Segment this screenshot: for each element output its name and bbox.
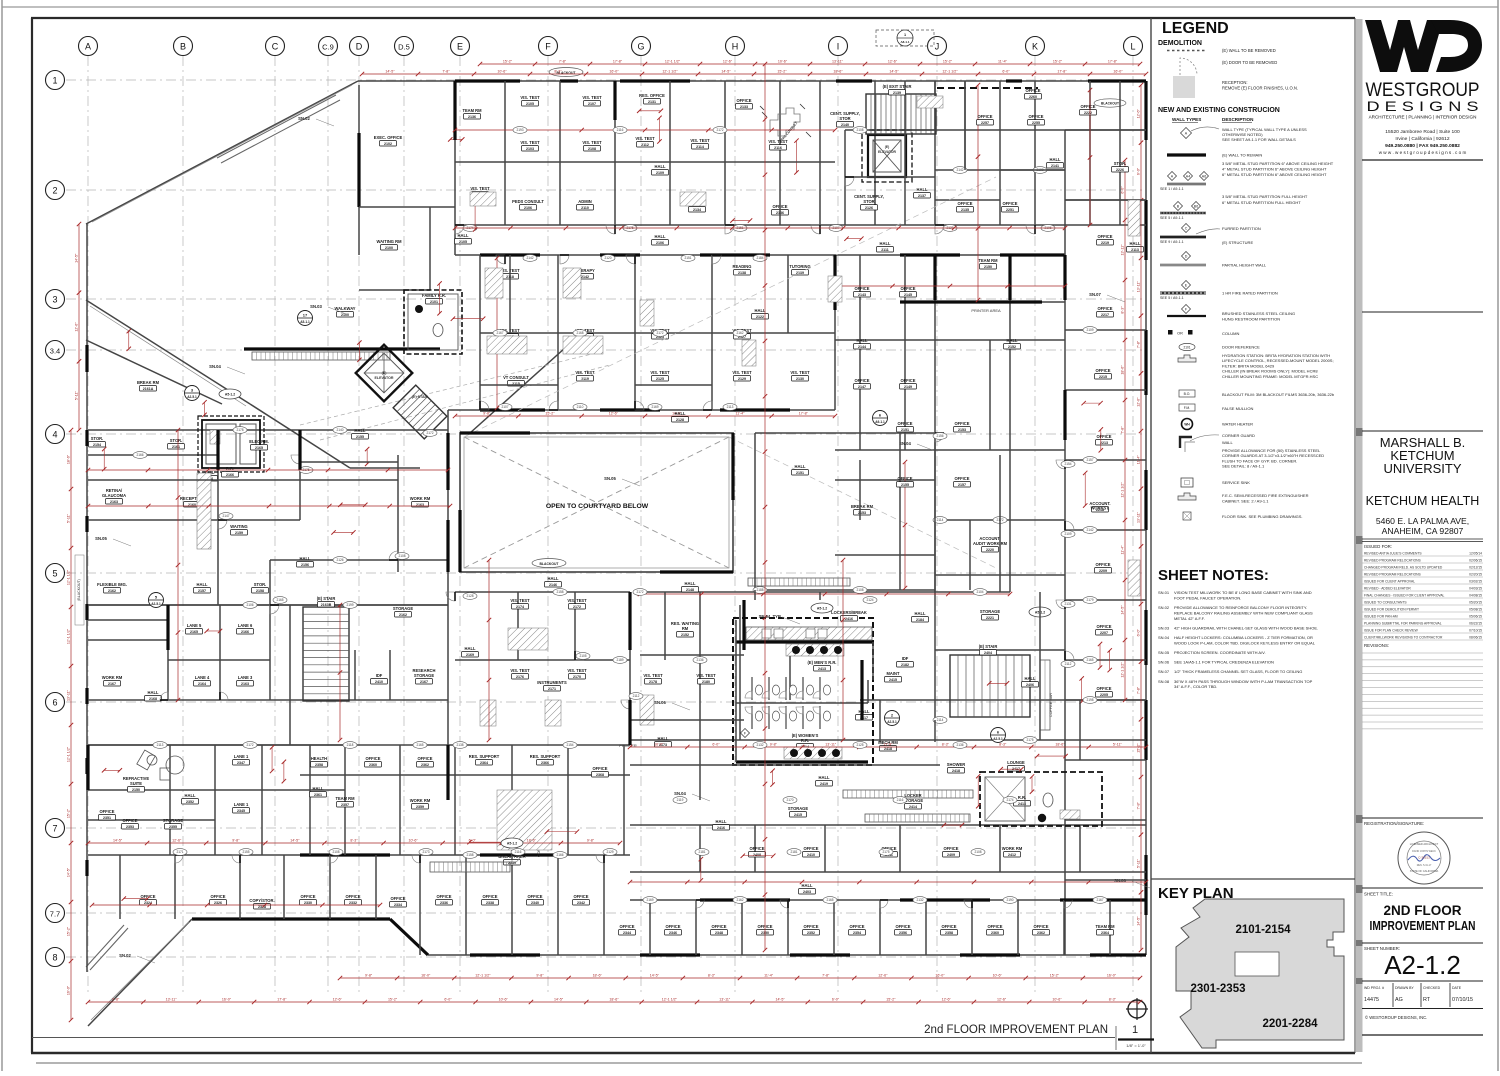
svg-text:ADMIN: ADMIN — [578, 199, 591, 204]
svg-text:C: C — [1185, 227, 1188, 231]
svg-text:R.R.: R.R. — [801, 738, 809, 743]
svg-text:OFFICE: OFFICE — [1096, 686, 1111, 691]
svg-text:DAVID JORYN WECK: DAVID JORYN WECK — [1412, 850, 1436, 853]
svg-text:2357: 2357 — [341, 803, 349, 807]
svg-text:2159: 2159 — [235, 531, 243, 535]
svg-text:SN.04: SN.04 — [674, 791, 686, 796]
svg-text:OFFICE: OFFICE — [736, 98, 751, 103]
svg-text:INSTRUMENTS: INSTRUMENTS — [537, 680, 567, 685]
svg-text:2100: 2100 — [385, 246, 393, 250]
svg-text:05/20/15: 05/20/15 — [1469, 601, 1482, 605]
svg-text:SN.02: SN.02 — [298, 116, 310, 121]
svg-text:HALL: HALL — [465, 646, 476, 651]
svg-text:OFFICE: OFFICE — [1097, 234, 1112, 239]
svg-text:04/08/15: 04/08/15 — [1469, 594, 1482, 598]
svg-text:2162: 2162 — [736, 331, 743, 335]
svg-text:2257: 2257 — [981, 121, 989, 125]
svg-text:WORK RM: WORK RM — [410, 798, 431, 803]
svg-text:ELEC RM.: ELEC RM. — [249, 439, 269, 444]
svg-text:B.O.: B.O. — [1184, 392, 1191, 396]
svg-text:WALL: WALL — [1222, 440, 1234, 445]
svg-text:ANAHEIM, CA 92807: ANAHEIM, CA 92807 — [1382, 526, 1464, 536]
svg-text:7'-8": 7'-8" — [1136, 802, 1140, 810]
svg-text:2332: 2332 — [349, 901, 357, 905]
svg-text:2107: 2107 — [501, 405, 508, 409]
svg-text:2142: 2142 — [526, 256, 533, 260]
svg-text:WORK RM: WORK RM — [1002, 846, 1023, 851]
svg-text:(E) DOOR TO BE REMOVED: (E) DOOR TO BE REMOVED — [1222, 60, 1277, 65]
svg-text:HALL: HALL — [185, 793, 196, 798]
svg-text:2222: 2222 — [1084, 111, 1092, 115]
svg-text:ISSUED FOR DEMOLITION PERMIT: ISSUED FOR DEMOLITION PERMIT — [1364, 608, 1419, 612]
svg-text:2155: 2155 — [242, 850, 249, 854]
svg-text:2355: 2355 — [169, 825, 177, 829]
svg-text:12'-1 1/2": 12'-1 1/2" — [66, 569, 70, 585]
svg-text:E: E — [457, 42, 463, 52]
svg-text:2173: 2173 — [422, 850, 429, 854]
svg-text:2126: 2126 — [865, 206, 873, 210]
svg-text:VIS. TEST: VIS. TEST — [567, 668, 587, 673]
svg-text:VIS. TEST: VIS. TEST — [582, 140, 602, 145]
svg-text:G: G — [637, 42, 644, 52]
svg-text:SN.05: SN.05 — [95, 536, 107, 541]
svg-text:10'-6": 10'-6" — [497, 69, 507, 73]
svg-text:2170: 2170 — [786, 798, 793, 802]
svg-text:2172: 2172 — [246, 743, 253, 747]
svg-text:2174: 2174 — [516, 605, 524, 609]
svg-text:12'-1 1/2": 12'-1 1/2" — [1120, 662, 1124, 678]
svg-text:2142: 2142 — [956, 168, 963, 172]
svg-text:OFFICE: OFFICE — [954, 476, 969, 481]
svg-text:12'-1 1/2": 12'-1 1/2" — [662, 69, 678, 73]
svg-text:12'-6": 12'-6" — [172, 838, 182, 842]
svg-text:12'-6": 12'-6" — [609, 411, 619, 415]
svg-text:18'-6": 18'-6" — [527, 838, 537, 842]
svg-text:REPLACE BALCONY RAILING ASSEMB: REPLACE BALCONY RAILING ASSEMBLY WITH NE… — [1174, 610, 1313, 615]
svg-text:2162: 2162 — [108, 589, 116, 593]
svg-text:DESCRIPTION: DESCRIPTION — [1222, 117, 1254, 122]
svg-text:F.E.C. SEMI-RECESSED FIRE EXTI: F.E.C. SEMI-RECESSED FIRE EXTINGUISHER — [1222, 493, 1309, 498]
svg-text:VIS. TEST: VIS. TEST — [635, 136, 655, 141]
svg-text:WALL TYPES: WALL TYPES — [1172, 117, 1201, 122]
svg-text:FLEXIBLE IMG.: FLEXIBLE IMG. — [97, 582, 127, 587]
svg-text:CHILLER MOUNTING FRAME: MODEL: CHILLER MOUNTING FRAME: MODEL MTGFR.HSC — [1222, 374, 1318, 379]
svg-text:STORAGE: STORAGE — [980, 609, 1000, 614]
svg-text:8'-3": 8'-3" — [554, 69, 562, 73]
svg-text:2nd FLOOR IMPROVEMENT PLAN: 2nd FLOOR IMPROVEMENT PLAN — [924, 1024, 1108, 1036]
svg-text:2219: 2219 — [1101, 241, 1109, 245]
svg-text:6'-0": 6'-0" — [712, 742, 720, 746]
svg-text:CORNER GUARD: CORNER GUARD — [1222, 433, 1255, 438]
svg-text:2352: 2352 — [186, 800, 194, 804]
svg-text:VIS. TEST: VIS. TEST — [520, 140, 540, 145]
svg-text:WORK RM: WORK RM — [410, 496, 431, 501]
svg-text:HALL: HALL — [355, 428, 366, 433]
svg-text:5'-11": 5'-11" — [66, 513, 70, 523]
svg-text:(E) STAIR: (E) STAIR — [317, 596, 336, 601]
svg-text:HALL: HALL — [655, 164, 666, 169]
svg-text:SERVICE SINK: SERVICE SINK — [1222, 480, 1250, 485]
svg-text:2165: 2165 — [276, 598, 283, 602]
svg-text:12'-1 1/2": 12'-1 1/2" — [475, 973, 491, 977]
svg-text:HALL: HALL — [1025, 676, 1036, 681]
svg-text:(E) MEN’S R.R.: (E) MEN’S R.R. — [808, 660, 837, 665]
svg-text:17'-8": 17'-8" — [1108, 59, 1118, 63]
svg-text:949.250.0880 | FAX 949.250.0: 949.250.0880 | FAX 949.250.0882 — [1385, 143, 1460, 149]
svg-text:STOR.: STOR. — [170, 438, 182, 443]
svg-text:2167: 2167 — [108, 682, 116, 686]
svg-text:12'-6": 12'-6" — [74, 322, 78, 332]
svg-text:2102: 2102 — [384, 142, 392, 146]
svg-text:REMOVE (E) FLOOR FINISHES, U.O: REMOVE (E) FLOOR FINISHES, U.O.N. — [1222, 86, 1298, 91]
svg-text:DRAWN BY: DRAWN BY — [1395, 986, 1414, 990]
svg-text:D: D — [356, 42, 363, 52]
svg-text:PARTIAL HEIGHT WALL: PARTIAL HEIGHT WALL — [1222, 263, 1267, 268]
svg-text:PROJECTION SCREEN. COORDINATE: PROJECTION SCREEN. COORDINATE WITH A/V. — [1174, 650, 1266, 655]
svg-text:08/06/15: 08/06/15 — [1469, 636, 1482, 640]
svg-text:7: 7 — [52, 824, 57, 834]
svg-text:OFFICE: OFFICE — [1028, 114, 1043, 119]
svg-text:2346: 2346 — [669, 931, 677, 935]
svg-text:2125: 2125 — [656, 377, 664, 381]
svg-text:2110: 2110 — [581, 206, 589, 210]
svg-text:FAMILY R.R.: FAMILY R.R. — [422, 293, 446, 298]
svg-text:ISSUED FOR:: ISSUED FOR: — [1364, 544, 1392, 549]
svg-text:STOR: STOR — [863, 199, 874, 204]
svg-text:2175: 2175 — [882, 850, 889, 854]
svg-text:SN.04: SN.04 — [899, 441, 911, 446]
svg-text:6'-0": 6'-0" — [832, 997, 840, 1001]
svg-text:18'-6": 18'-6" — [66, 454, 70, 464]
svg-text:2166: 2166 — [226, 473, 234, 477]
svg-text:2412: 2412 — [1008, 853, 1016, 857]
svg-text:12'-1 1/2": 12'-1 1/2" — [662, 997, 678, 1001]
svg-text:2169: 2169 — [646, 898, 653, 902]
svg-text:GLAUCOMA: GLAUCOMA — [102, 493, 126, 498]
svg-text:SN.06: SN.06 — [654, 700, 666, 705]
svg-text:WAITING: WAITING — [230, 524, 248, 529]
svg-text:8'-3": 8'-3" — [1120, 306, 1124, 314]
svg-text:2336: 2336 — [440, 901, 448, 905]
svg-text:AG: AG — [1395, 997, 1403, 1003]
svg-text:NEW AND EXISTING CONSTRUCION: NEW AND EXISTING CONSTRUCION — [1158, 107, 1280, 114]
svg-text:SUITE: SUITE — [130, 781, 142, 786]
svg-text:1/2" THICK FRAMELESS CHANNEL S: 1/2" THICK FRAMELESS CHANNEL SET GLASS, … — [1174, 669, 1302, 674]
svg-text:HALL: HALL — [1130, 241, 1141, 246]
svg-text:2152: 2152 — [681, 633, 689, 637]
svg-text:13'-11": 13'-11" — [66, 689, 70, 701]
svg-text:2221: 2221 — [986, 616, 994, 620]
svg-text:8'-3": 8'-3" — [708, 973, 716, 977]
svg-text:RES. SUPPORT: RES. SUPPORT — [530, 754, 561, 759]
svg-text:2153: 2153 — [858, 511, 866, 515]
svg-text:SN.06: SN.06 — [1158, 660, 1170, 665]
svg-text:OFFICE: OFFICE — [210, 894, 225, 899]
svg-text:6: 6 — [52, 698, 57, 708]
svg-text:HALL: HALL — [300, 556, 311, 561]
svg-text:HALL: HALL — [915, 611, 926, 616]
svg-text:2413: 2413 — [818, 667, 826, 671]
svg-text:2137: 2137 — [918, 194, 926, 198]
svg-text:D: D — [1185, 255, 1188, 259]
svg-text:K: K — [1032, 42, 1038, 52]
svg-text:A6: A6 — [1202, 175, 1206, 179]
svg-text:2157: 2157 — [958, 483, 966, 487]
svg-text:02/06/15: 02/06/15 — [1469, 559, 1482, 563]
svg-text:2156: 2156 — [936, 434, 943, 438]
svg-text:LANE 4: LANE 4 — [195, 675, 210, 680]
svg-text:A9-1.1: A9-1.1 — [875, 420, 885, 424]
svg-text:2416: 2416 — [717, 826, 725, 830]
svg-text:2135: 2135 — [961, 208, 969, 212]
svg-text:2146: 2146 — [549, 583, 557, 587]
svg-text:2171: 2171 — [548, 687, 556, 691]
svg-text:F.M.: F.M. — [1184, 406, 1190, 410]
svg-text:16'-0": 16'-0" — [66, 985, 70, 995]
svg-text:11'-4": 11'-4" — [764, 973, 774, 977]
svg-text:7'-8": 7'-8" — [822, 973, 830, 977]
svg-text:2148: 2148 — [686, 588, 694, 592]
svg-text:2220: 2220 — [986, 548, 994, 552]
svg-text:VIS. TEST: VIS. TEST — [510, 668, 530, 673]
svg-text:15'-2": 15'-2" — [777, 69, 787, 73]
svg-text:STOR: STOR — [839, 116, 850, 121]
svg-text:2360: 2360 — [991, 931, 999, 935]
svg-text:2133: 2133 — [740, 105, 748, 109]
svg-text:OFFICE: OFFICE — [619, 924, 634, 929]
svg-text:2125: 2125 — [856, 743, 863, 747]
svg-text:HALL: HALL — [675, 411, 686, 416]
svg-text:2353: 2353 — [126, 825, 134, 829]
svg-text:2106: 2106 — [656, 241, 664, 245]
svg-text:HEALTH: HEALTH — [311, 756, 327, 761]
svg-text:2119: 2119 — [677, 798, 684, 802]
svg-text:2106: 2106 — [524, 206, 532, 210]
svg-text:SN.01: SN.01 — [1158, 590, 1170, 595]
svg-text:2144: 2144 — [858, 345, 866, 349]
svg-text:OFFICE: OFFICE — [527, 894, 542, 899]
svg-text:HALL: HALL — [1050, 157, 1061, 162]
svg-text:12'-1 1/2": 12'-1 1/2" — [66, 746, 70, 762]
svg-text:2109: 2109 — [656, 171, 664, 175]
svg-text:15'-2": 15'-2" — [503, 59, 513, 63]
svg-text:2161: 2161 — [172, 445, 180, 449]
svg-text:2163: 2163 — [110, 500, 118, 504]
svg-text:2ND FLOOR: 2ND FLOOR — [1383, 903, 1461, 918]
svg-text:F: F — [545, 42, 551, 52]
svg-text:B6: B6 — [1194, 205, 1198, 209]
svg-text:HALL: HALL — [880, 241, 891, 246]
svg-text:OFFICE: OFFICE — [900, 378, 915, 383]
svg-text:2147: 2147 — [858, 385, 866, 389]
svg-text:IDF: IDF — [376, 673, 383, 678]
svg-text:WATER HEATER: WATER HEATER — [1222, 422, 1253, 427]
svg-text:2348: 2348 — [715, 931, 723, 935]
svg-text:2167: 2167 — [496, 331, 503, 335]
svg-text:(E) STAIR: (E) STAIR — [979, 644, 998, 649]
svg-text:2165: 2165 — [826, 898, 833, 902]
svg-text:B: B — [180, 42, 186, 52]
svg-text:5'-11": 5'-11" — [1113, 742, 1123, 746]
svg-text:2126: 2126 — [336, 558, 343, 562]
svg-text:FINAL CHANGES - ISSUED FOR CLI: FINAL CHANGES - ISSUED FOR CLIENT APPROV… — [1364, 594, 1445, 598]
svg-text:(E) STAIR: (E) STAIR — [412, 395, 429, 399]
svg-text:LICENSED ARCHITECT: LICENSED ARCHITECT — [1410, 842, 1439, 846]
svg-text:2181: 2181 — [698, 850, 705, 854]
svg-text:BREAK RM: BREAK RM — [851, 504, 874, 509]
svg-text:OFFICE: OFFICE — [365, 756, 380, 761]
svg-text:RT: RT — [1423, 997, 1431, 1003]
svg-text:14'-5": 14'-5" — [385, 69, 395, 73]
svg-text:OFFICE: OFFICE — [943, 846, 958, 851]
svg-text:HALL: HALL — [548, 576, 559, 581]
svg-text:14'-5": 14'-5" — [290, 838, 300, 842]
svg-text:14'-5": 14'-5" — [74, 253, 78, 263]
svg-text:REVISED PROGRAM RELOCATIONS: REVISED PROGRAM RELOCATIONS — [1364, 573, 1422, 577]
svg-text:2172: 2172 — [573, 605, 581, 609]
svg-text:2128: 2128 — [676, 418, 684, 422]
svg-text:9'-8": 9'-8" — [483, 411, 491, 415]
svg-text:2155: 2155 — [356, 435, 364, 439]
svg-text:2205: 2205 — [1100, 693, 1108, 697]
svg-text:2153: 2153 — [958, 428, 966, 432]
svg-text:16'-0": 16'-0" — [222, 997, 232, 1001]
svg-text:2181: 2181 — [790, 850, 797, 854]
svg-text:OFFICE: OFFICE — [99, 809, 114, 814]
svg-text:SEE DETAIL: 8 / A9-1.1: SEE DETAIL: 8 / A9-1.1 — [1222, 464, 1265, 469]
svg-text:2178: 2178 — [649, 680, 657, 684]
svg-text:VIS. TEST: VIS. TEST — [567, 598, 587, 603]
svg-text:STOR.: STOR. — [1114, 161, 1126, 166]
svg-text:15'-2": 15'-2" — [66, 808, 70, 818]
svg-text:2169: 2169 — [651, 405, 658, 409]
svg-text:2163B: 2163B — [321, 603, 332, 607]
svg-text:10'-6": 10'-6" — [993, 973, 1003, 977]
svg-text:2415: 2415 — [889, 678, 897, 682]
svg-text:8: 8 — [52, 953, 57, 963]
svg-text:1: 1 — [52, 76, 57, 86]
svg-text:18'-6": 18'-6" — [1055, 742, 1065, 746]
svg-text:© WESTGROUP DESIGNS, INC.: © WESTGROUP DESIGNS, INC. — [1365, 1015, 1427, 1020]
svg-text:2366: 2366 — [541, 761, 549, 765]
svg-text:2198: 2198 — [1086, 698, 1093, 702]
svg-text:C: C — [272, 42, 279, 52]
svg-text:FLOOR SINK. SEE PLUMBING DRAWI: FLOOR SINK. SEE PLUMBING DRAWINGS. — [1222, 514, 1303, 519]
svg-text:SN.07: SN.07 — [1089, 292, 1101, 297]
svg-text:ELEVATOR: ELEVATOR — [878, 150, 896, 154]
svg-text:A5-1.2: A5-1.2 — [817, 607, 827, 611]
svg-text:LOCKERS/BREAK: LOCKERS/BREAK — [831, 610, 867, 615]
svg-text:2172: 2172 — [636, 590, 643, 594]
svg-text:SHEET NOTES:: SHEET NOTES: — [1158, 567, 1269, 584]
svg-text:17: 17 — [303, 312, 308, 317]
svg-text:13'-11": 13'-11" — [166, 997, 178, 1001]
svg-text:2334: 2334 — [394, 903, 402, 907]
svg-text:5'-11": 5'-11" — [74, 391, 78, 401]
svg-text:OPEN TO COURTYARD BELOW: OPEN TO COURTYARD BELOW — [546, 503, 649, 510]
svg-text:2131: 2131 — [648, 100, 656, 104]
svg-text:2182: 2182 — [901, 663, 909, 667]
svg-text:14'-5": 14'-5" — [721, 69, 731, 73]
svg-text:2103: 2103 — [526, 147, 534, 151]
svg-text:DEMOLITION: DEMOLITION — [1158, 40, 1202, 47]
svg-text:OFFICE: OFFICE — [1097, 306, 1112, 311]
svg-text:2166: 2166 — [136, 453, 143, 457]
svg-text:CLIENT/MILLWORK REVISIONS TO C: CLIENT/MILLWORK REVISIONS TO CONTRACTOR — [1364, 636, 1443, 640]
svg-text:STOR.: STOR. — [91, 436, 103, 441]
svg-text:8'-3": 8'-3" — [942, 742, 950, 746]
svg-text:(BLACKOUT): (BLACKOUT) — [77, 579, 81, 601]
svg-text:VIS. TEST: VIS. TEST — [582, 95, 602, 100]
svg-text:2164: 2164 — [198, 682, 206, 686]
svg-text:2188: 2188 — [756, 588, 763, 592]
svg-text:6" METAL STUD PARTITION 6" ABO: 6" METAL STUD PARTITION 6" ABOVE CEILING… — [1222, 172, 1327, 177]
svg-text:2136: 2136 — [696, 658, 703, 662]
svg-text:SN.04: SN.04 — [1158, 635, 1170, 640]
svg-text:TEAM RM: TEAM RM — [462, 108, 482, 113]
svg-text:16'-0": 16'-0" — [1113, 69, 1123, 73]
svg-text:REN. 5-31-17: REN. 5-31-17 — [1417, 864, 1432, 867]
svg-text:2154: 2154 — [566, 743, 573, 747]
svg-text:PRINTER AREA: PRINTER AREA — [971, 308, 1001, 313]
svg-text:7'-8": 7'-8" — [1120, 426, 1124, 434]
svg-text:2107: 2107 — [588, 102, 596, 106]
svg-text:2105: 2105 — [459, 240, 467, 244]
svg-text:2410: 2410 — [807, 853, 815, 857]
svg-text:WORK RM: WORK RM — [102, 675, 123, 680]
svg-text:2108: 2108 — [398, 554, 405, 558]
svg-text:2105: 2105 — [526, 102, 534, 106]
svg-text:OFFICE: OFFICE — [854, 378, 869, 383]
svg-text:10'-6": 10'-6" — [499, 997, 509, 1001]
svg-text:(E) WALL TO BE REMOVED: (E) WALL TO BE REMOVED — [1222, 48, 1276, 53]
svg-text:2226: 2226 — [1116, 168, 1124, 172]
svg-text:9'-8": 9'-8" — [536, 973, 544, 977]
svg-text:12'-1 1/2": 12'-1 1/2" — [66, 628, 70, 644]
svg-text:4: 4 — [52, 430, 57, 440]
svg-text:2166: 2166 — [556, 853, 563, 857]
svg-text:4" METAL STUD PARTITION 6" ABO: 4" METAL STUD PARTITION 6" ABOVE CEILING… — [1222, 167, 1327, 172]
svg-text:13'-11": 13'-11" — [832, 59, 844, 63]
svg-text:16'-0": 16'-0" — [654, 742, 664, 746]
svg-text:LANE 1: LANE 1 — [234, 754, 249, 759]
svg-text:RM: RM — [682, 626, 689, 631]
svg-text:2145: 2145 — [904, 293, 912, 297]
svg-text:VIS. TEST: VIS. TEST — [643, 673, 663, 678]
svg-text:REVISED PROGRAM RELOCATIONS: REVISED PROGRAM RELOCATIONS — [1364, 559, 1422, 563]
svg-text:2162: 2162 — [736, 898, 743, 902]
svg-text:REVISED - ADDED ELEVATOR: REVISED - ADDED ELEVATOR — [1364, 587, 1411, 591]
svg-text:1: 1 — [1132, 1024, 1138, 1036]
svg-text:14'-5": 14'-5" — [66, 867, 70, 877]
svg-text:SN.02: SN.02 — [1158, 605, 1170, 610]
svg-text:EXEC. OFFICE: EXEC. OFFICE — [374, 135, 403, 140]
svg-text:2351: 2351 — [103, 816, 111, 820]
svg-text:BRUSHED STAINLESS STEEL CEILIN: BRUSHED STAINLESS STEEL CEILING — [1222, 311, 1295, 316]
svg-text:11'-4": 11'-4" — [998, 59, 1008, 63]
svg-text:16'-0": 16'-0" — [935, 973, 945, 977]
svg-text:VT CONSULT: VT CONSULT — [503, 375, 529, 380]
svg-text:3 5/8" METAL STUD PARTITION 6": 3 5/8" METAL STUD PARTITION 6" ABOVE CEI… — [1222, 161, 1334, 166]
svg-text:15'-2": 15'-2" — [886, 997, 896, 1001]
svg-text:2190: 2190 — [1006, 898, 1013, 902]
svg-text:2108: 2108 — [856, 128, 863, 132]
svg-text:14'-5": 14'-5" — [650, 973, 660, 977]
svg-text:2108: 2108 — [974, 850, 981, 854]
svg-text:HALL: HALL — [917, 187, 928, 192]
svg-text:OFFICE: OFFICE — [417, 756, 432, 761]
svg-text:2326: 2326 — [214, 901, 222, 905]
